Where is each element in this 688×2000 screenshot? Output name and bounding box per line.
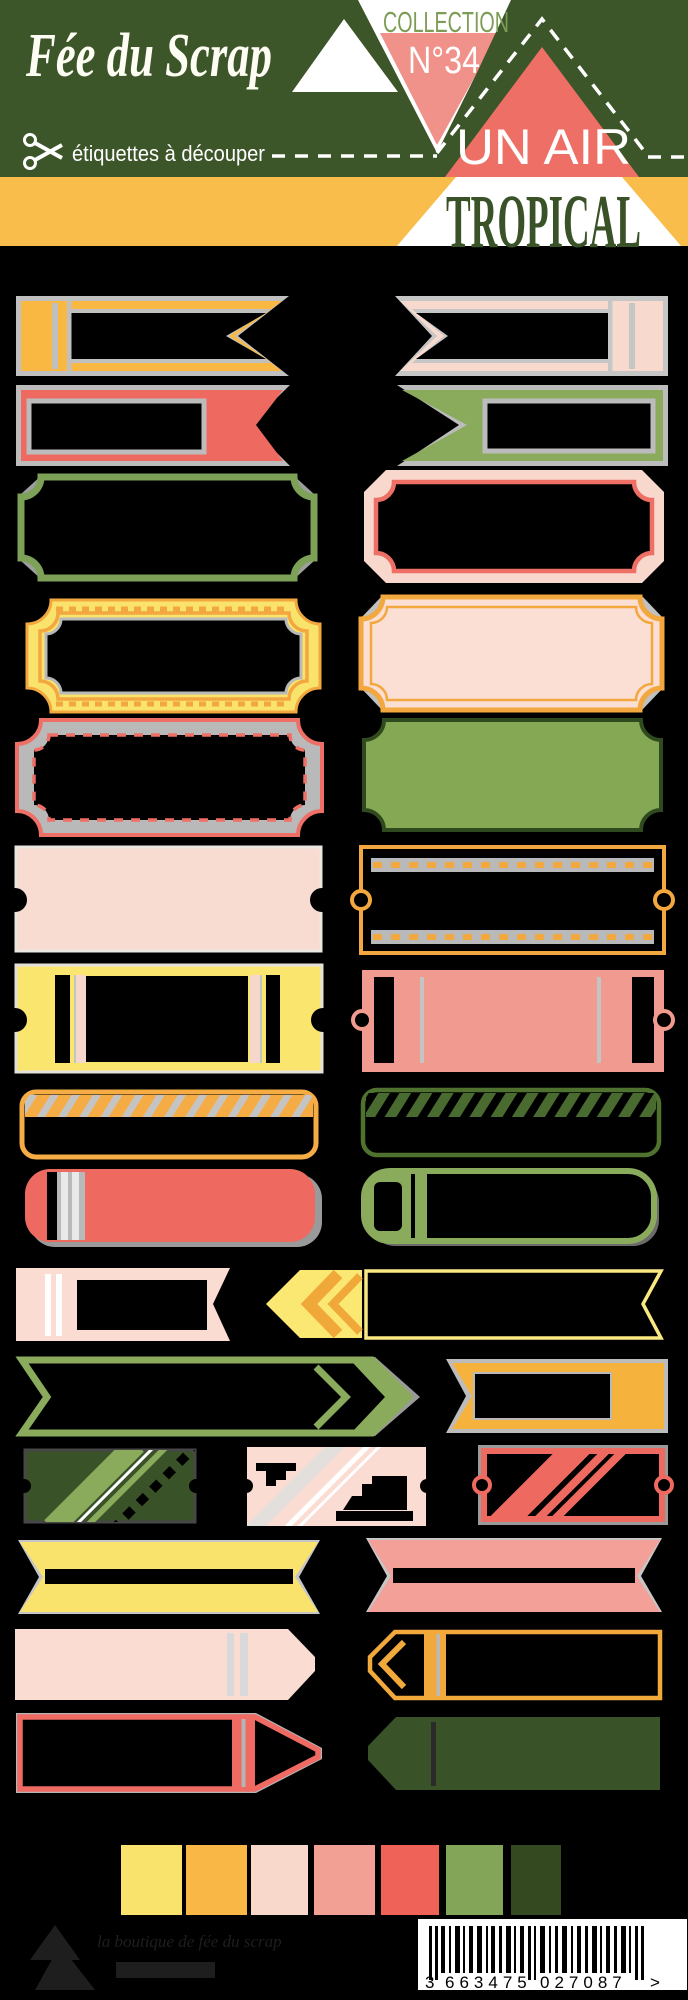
svg-text:N°34: N°34 [408,40,480,82]
svg-text:TROPICAL: TROPICAL [446,180,641,264]
svg-text:Fée du Scrap: Fée du Scrap [25,22,272,90]
svg-text:663475: 663475 [445,1973,532,1992]
svg-text:étiquettes à découper: étiquettes à découper [72,141,265,166]
svg-text:COLLECTION: COLLECTION [383,7,509,39]
svg-text:la boutique de fée du scrap: la boutique de fée du scrap [97,1932,282,1951]
svg-text:UN AIR: UN AIR [456,119,631,175]
svg-text:>: > [650,1973,660,1992]
svg-text:027087: 027087 [540,1973,627,1992]
svg-text:3: 3 [425,1973,434,1992]
